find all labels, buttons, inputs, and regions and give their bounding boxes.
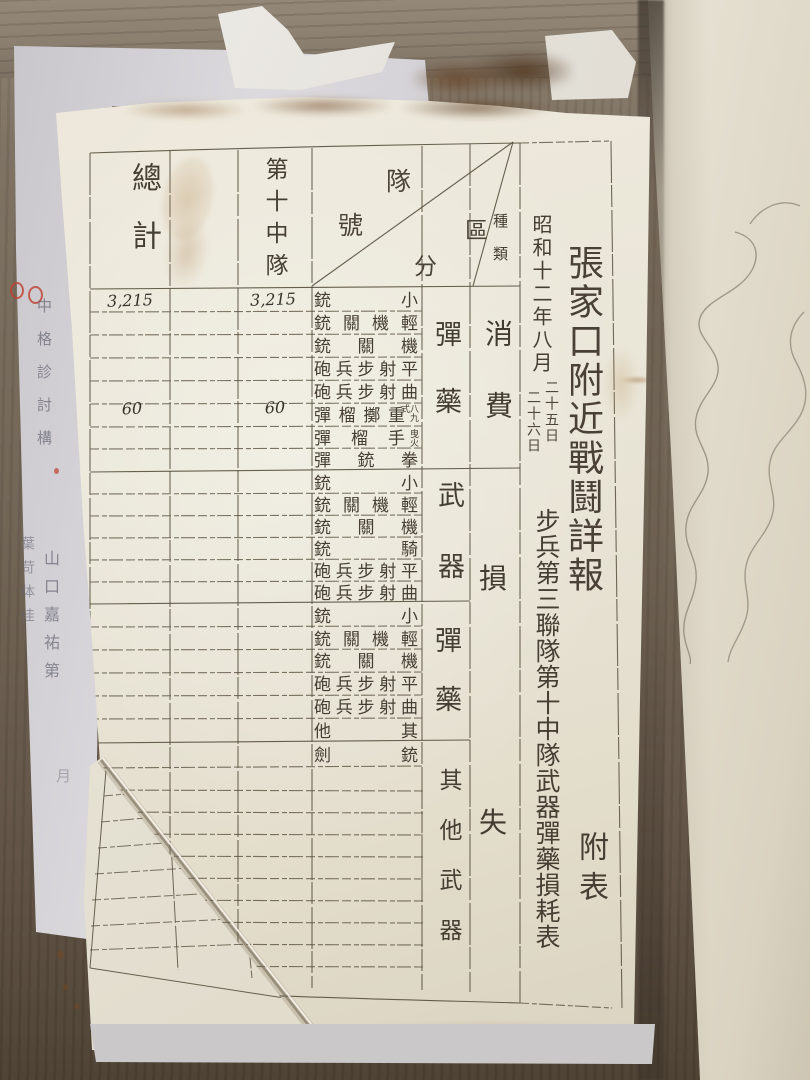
fold-crease [0,0,810,1080]
document-photo: 中格診討構 葉苛体佳 山口嘉祐第 月 [0,0,810,1080]
